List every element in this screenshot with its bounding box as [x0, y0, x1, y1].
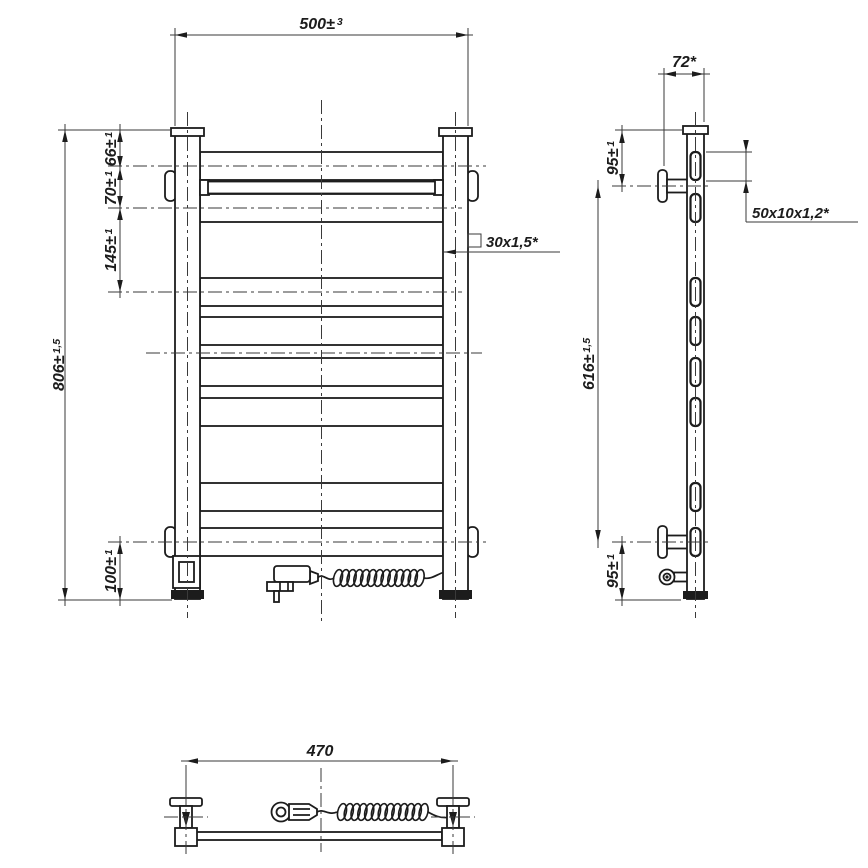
dim-arrow [456, 32, 468, 38]
dim-bracket-distance: 470 [181, 743, 458, 799]
plug-pin [274, 591, 279, 602]
power-plug [272, 803, 318, 822]
bottom-view [164, 766, 475, 854]
dim-arrow [62, 588, 68, 600]
dim-arrow [175, 32, 187, 38]
dim-rung-chain: 66±1 70±1 145±1 [58, 124, 172, 298]
dim-arrow [595, 186, 601, 198]
power-plug [267, 566, 318, 602]
dim-arrow [743, 181, 749, 193]
dim-arrow [619, 542, 625, 554]
square-profile-icon [468, 234, 481, 247]
dim-overall-height: 806±1,5 [51, 124, 68, 606]
plug-ring-inner [277, 808, 286, 817]
coil-loop [418, 803, 430, 821]
dim-label: 500±3 [299, 16, 342, 33]
dim-arrow [595, 530, 601, 542]
front-view [108, 100, 486, 622]
plug-body [289, 804, 317, 820]
dim-arrow [117, 542, 123, 554]
dim-arrow [117, 208, 123, 220]
dim-label: 66±1 [103, 132, 120, 167]
plug-body [274, 566, 310, 582]
dim-bracket-span: 616±1,5 [581, 180, 601, 548]
dim-label: 95±1 [605, 141, 622, 176]
rail-bar [196, 832, 442, 840]
plug-boot [310, 571, 318, 584]
dim-label: 95±1 [605, 554, 622, 589]
dim-label: 30x1,5* [486, 234, 539, 251]
coiled-cable [336, 803, 430, 821]
dim-label: 616±1,5 [581, 338, 598, 390]
cable-gland-dot [665, 575, 668, 578]
dim-bottom-rung-offset: 100±1 [58, 536, 172, 606]
power-cable [318, 576, 334, 579]
dim-arrow [664, 71, 676, 77]
heater-housing-inner [179, 562, 194, 582]
power-cable [317, 811, 337, 813]
dim-arrow [743, 140, 749, 152]
dim-label: 50x10x1,2* [752, 205, 830, 222]
dim-label: 70±1 [103, 171, 120, 206]
dim-arrow [619, 588, 625, 600]
dim-label: 72* [672, 54, 697, 71]
dim-label: 470 [306, 743, 334, 760]
dim-label: 145±1 [103, 228, 120, 271]
drawing-canvas: 500±3 66±1 70±1 145±1 100±1 [0, 0, 868, 868]
dim-arrow [441, 758, 453, 764]
side-view [612, 112, 712, 618]
dim-label: 100±1 [103, 549, 120, 592]
power-cable [424, 573, 443, 579]
dim-arrow [619, 131, 625, 143]
dim-arrow [186, 758, 198, 764]
dim-arrow [692, 71, 704, 77]
dim-rung-profile: 50x10x1,2* [706, 140, 858, 222]
cable-gland-stem [674, 573, 688, 582]
coil-loop [414, 569, 426, 587]
dim-arrow [117, 280, 123, 292]
dim-arrow [117, 168, 123, 180]
dim-arrow [62, 130, 68, 142]
coiled-cable [332, 569, 426, 587]
